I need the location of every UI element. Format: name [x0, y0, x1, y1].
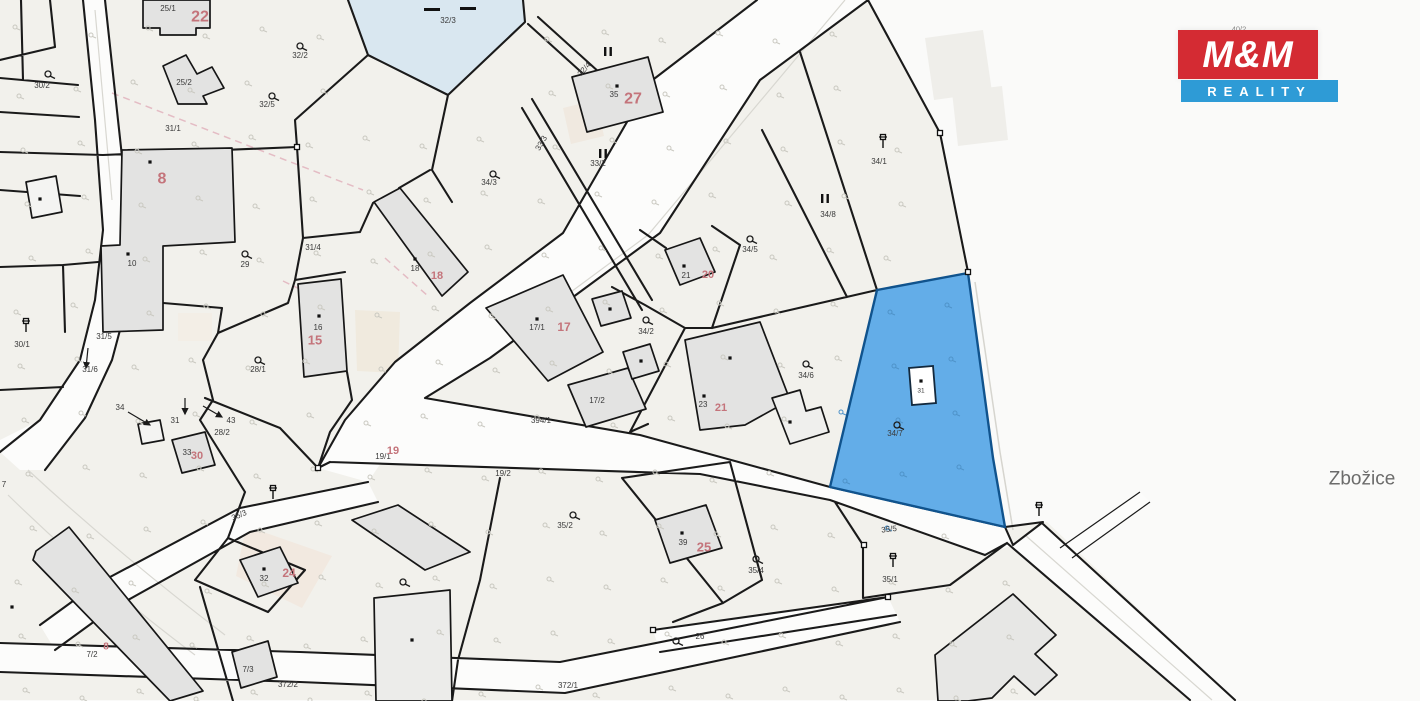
label-31-5: 31/5: [96, 332, 112, 341]
label-red-22: 22: [191, 9, 209, 26]
cadastral-map[interactable]: 25/130/232/232/531/125/232/332/43533/233…: [0, 0, 1420, 701]
boundary-node-icon: [938, 131, 943, 136]
logo-top: M&M: [1178, 30, 1318, 79]
label-28-2: 28/2: [214, 428, 230, 437]
screenshot-stage: 25/130/232/232/531/125/232/332/43533/233…: [0, 0, 1420, 701]
label-b10: 10: [128, 259, 137, 268]
highlighted-parcel-building: [909, 366, 936, 405]
label-34-1: 34/1: [871, 157, 887, 166]
building-dot-icon: [148, 160, 151, 163]
label-7-3: 7/3: [242, 665, 254, 674]
label-17-2: 17/2: [589, 396, 605, 405]
label-19-2: 19/2: [495, 469, 511, 478]
label-31-4: 31/4: [305, 243, 321, 252]
label-34-5: 34/5: [742, 245, 758, 254]
building-dot-icon: [317, 314, 320, 317]
label-red-8: 8: [158, 171, 167, 188]
label-b18: 18: [411, 264, 420, 273]
label-b35: 35: [610, 90, 619, 99]
label-red-8b: 8: [103, 642, 109, 653]
label-b23: 23: [699, 400, 708, 409]
label-25-1: 25/1: [160, 4, 176, 13]
label-b32: 32: [260, 574, 269, 583]
building-dot-icon: [680, 531, 683, 534]
label-34-8: 34/8: [820, 210, 836, 219]
building-dot-icon: [639, 359, 642, 362]
dash-mark-icon: [424, 8, 440, 11]
label-red-30: 30: [191, 450, 203, 462]
building-dot-icon: [702, 394, 705, 397]
label-34-7: 34/7: [887, 429, 903, 438]
label-34-6: 34/6: [798, 371, 814, 380]
building-dot-icon: [788, 420, 791, 423]
boundary-node-icon: [316, 466, 321, 471]
label-red-20: 20: [702, 269, 714, 281]
label-17-1: 17/1: [529, 323, 545, 332]
label-p29: 29: [241, 260, 250, 269]
label-28-1: 28/1: [250, 365, 266, 374]
label-35-1: 35/1: [882, 575, 898, 584]
building-dot-icon: [10, 605, 13, 608]
label-372-1: 372/1: [558, 681, 579, 690]
building-dot-icon: [126, 252, 129, 255]
label-394-1: 394/1: [531, 416, 552, 425]
boundary-node-icon: [651, 628, 656, 633]
label-b16: 16: [314, 323, 323, 332]
label-35-2: 35/2: [557, 521, 573, 530]
label-red-25: 25: [697, 540, 711, 555]
label-35-4: 35/4: [748, 566, 764, 575]
logo-bottom: REALITY: [1181, 80, 1338, 102]
mm-reality-logo: M&M REALITY: [1178, 30, 1348, 102]
label-p7: 7: [2, 480, 7, 489]
building-dot-icon: [410, 638, 413, 641]
building-dot-icon: [38, 197, 41, 200]
boundary-node-icon: [966, 270, 971, 275]
label-b39: 39: [679, 538, 688, 547]
landmark-icon: [1035, 503, 1043, 517]
dash-mark-icon: [460, 7, 476, 10]
label-33-2: 33/2: [590, 159, 606, 168]
building-dot-icon: [682, 264, 685, 267]
building-dot-icon: [615, 84, 618, 87]
label-b31-blue: 31: [917, 387, 925, 394]
building-dot-icon: [608, 307, 611, 310]
label-25-2: 25/2: [176, 78, 192, 87]
label-30-1: 30/1: [14, 340, 30, 349]
label-place: Zbožice: [1329, 469, 1396, 490]
label-34-2: 34/2: [638, 327, 654, 336]
label-32-3: 32/3: [440, 16, 456, 25]
label-31-1: 31/1: [165, 124, 181, 133]
label-372-2: 372/2: [278, 680, 299, 689]
building-dot-icon: [728, 356, 731, 359]
label-35-5: 35/5: [881, 524, 898, 535]
label-34-3: 34/3: [481, 178, 497, 187]
label-32-5: 32/5: [259, 100, 275, 109]
label-red-17: 17: [557, 320, 571, 334]
label-32-2: 32/2: [292, 51, 308, 60]
label-red-27: 27: [624, 91, 642, 108]
building-dot-icon: [413, 257, 416, 260]
label-b21: 21: [682, 271, 691, 280]
label-30-2: 30/2: [34, 81, 50, 90]
label-p26: 26: [696, 632, 705, 641]
building-dot-icon: [535, 317, 538, 320]
boundary-node-icon: [886, 595, 891, 600]
label-red-19: 19: [387, 445, 399, 457]
building-dot-icon: [262, 567, 265, 570]
label-p31: 31: [171, 416, 180, 425]
building-dot-icon: [919, 379, 922, 382]
label-red-18: 18: [431, 270, 443, 282]
label-red-15: 15: [308, 333, 322, 348]
label-p34: 34: [116, 403, 125, 412]
boundary-node-icon: [862, 543, 867, 548]
boundary-node-icon: [295, 145, 300, 150]
label-red-24: 24: [282, 566, 296, 580]
label-7-2: 7/2: [86, 650, 98, 659]
label-31-6: 31/6: [82, 365, 98, 374]
label-p43: 43: [227, 416, 236, 425]
label-red-21: 21: [715, 402, 727, 414]
